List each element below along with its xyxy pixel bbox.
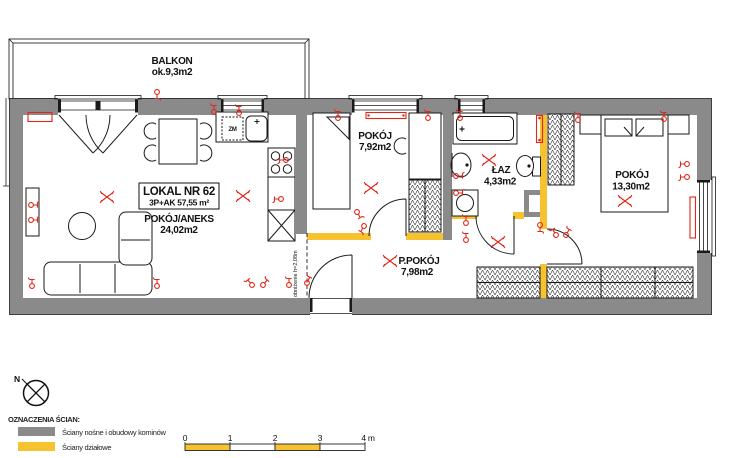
dining-table-set <box>144 119 212 164</box>
tv-cabinet <box>26 188 39 236</box>
double-bed <box>601 115 668 212</box>
scale-tick-2: 2 <box>273 433 278 443</box>
nightstand-right <box>668 115 689 134</box>
north-indicator: N <box>14 374 49 406</box>
toilet <box>517 156 541 177</box>
scale-bar: 0 1 2 3 4 m <box>183 433 375 451</box>
bedroom-door <box>547 229 582 264</box>
lowered-ceiling-label: obniżenie h=2,08m <box>293 250 299 297</box>
single-bed <box>313 113 350 209</box>
label-aneks-area: 24,02m2 <box>160 225 198 236</box>
entrance-opening <box>310 297 352 315</box>
bathroom-door <box>476 216 514 254</box>
legend: OZNACZENIA ŚCIAN: Ściany nośne i obudowy… <box>8 415 166 452</box>
legend-swatch-load-bearing <box>18 427 55 436</box>
floor-plan-drawing: ZM <box>0 0 743 458</box>
title-block-line2: 3P+AK 57,55 m² <box>149 198 209 208</box>
balcony-door <box>55 96 141 117</box>
stove <box>268 148 295 177</box>
title-block-line1: LOKAL NR 62 <box>143 186 215 198</box>
scale-tick-1: 1 <box>228 433 233 443</box>
scale-tick-0: 0 <box>183 433 188 443</box>
label-przedpokoj-area: 7,98m2 <box>401 267 434 278</box>
washbasin <box>451 153 471 177</box>
dishwasher-label: ZM <box>228 127 236 133</box>
wardrobe-small-room <box>409 180 441 232</box>
nightstand-left <box>580 115 601 134</box>
label-sypialnia-area: 13,30m2 <box>612 182 650 193</box>
balcony-door-swing <box>59 115 137 153</box>
fridge <box>268 210 295 241</box>
wardrobe-corridor-row <box>477 267 693 298</box>
side-table <box>69 213 96 240</box>
label-pokoj-maly-name: POKÓJ <box>358 129 392 142</box>
wardrobe-bedroom-tall <box>548 114 574 185</box>
floor-plan-page: ZM <box>0 0 743 458</box>
label-przedpokoj-name: P.POKÓJ <box>398 254 439 267</box>
bedroom-window <box>696 177 716 256</box>
label-lazienka-area: 4,33m2 <box>484 177 517 188</box>
label-pokoj-maly-area: 7,92m2 <box>359 142 392 153</box>
north-label: N <box>14 374 20 384</box>
legend-item-load-bearing: Ściany nośne i obudowy kominów <box>62 428 166 437</box>
lowered-ceiling-boundary: obniżenie h=2,08m <box>293 233 307 298</box>
kitchen-counter: ZM <box>216 112 268 142</box>
label-aneks-name: POKÓJ/ANEKS <box>144 212 214 225</box>
label-balkon-area: ok.9,3m2 <box>152 67 193 78</box>
label-sypialnia-name: POKÓJ <box>615 168 649 181</box>
desk-and-chair <box>394 113 441 179</box>
scale-tick-3: 3 <box>318 433 323 443</box>
legend-title: OZNACZENIA ŚCIAN: <box>8 415 80 424</box>
label-balkon-name: BALKON <box>152 56 193 67</box>
legend-swatch-partition <box>18 442 55 451</box>
label-lazienka-name: ŁAZ <box>492 165 511 176</box>
scale-end-label: 4 m <box>361 433 374 443</box>
entrance-door <box>309 255 352 298</box>
sofa <box>44 212 152 295</box>
legend-item-partition: Ściany działowe <box>62 443 111 452</box>
washing-machine <box>452 190 478 216</box>
small-room-door <box>369 199 406 236</box>
kitchen-worktop <box>268 177 295 210</box>
